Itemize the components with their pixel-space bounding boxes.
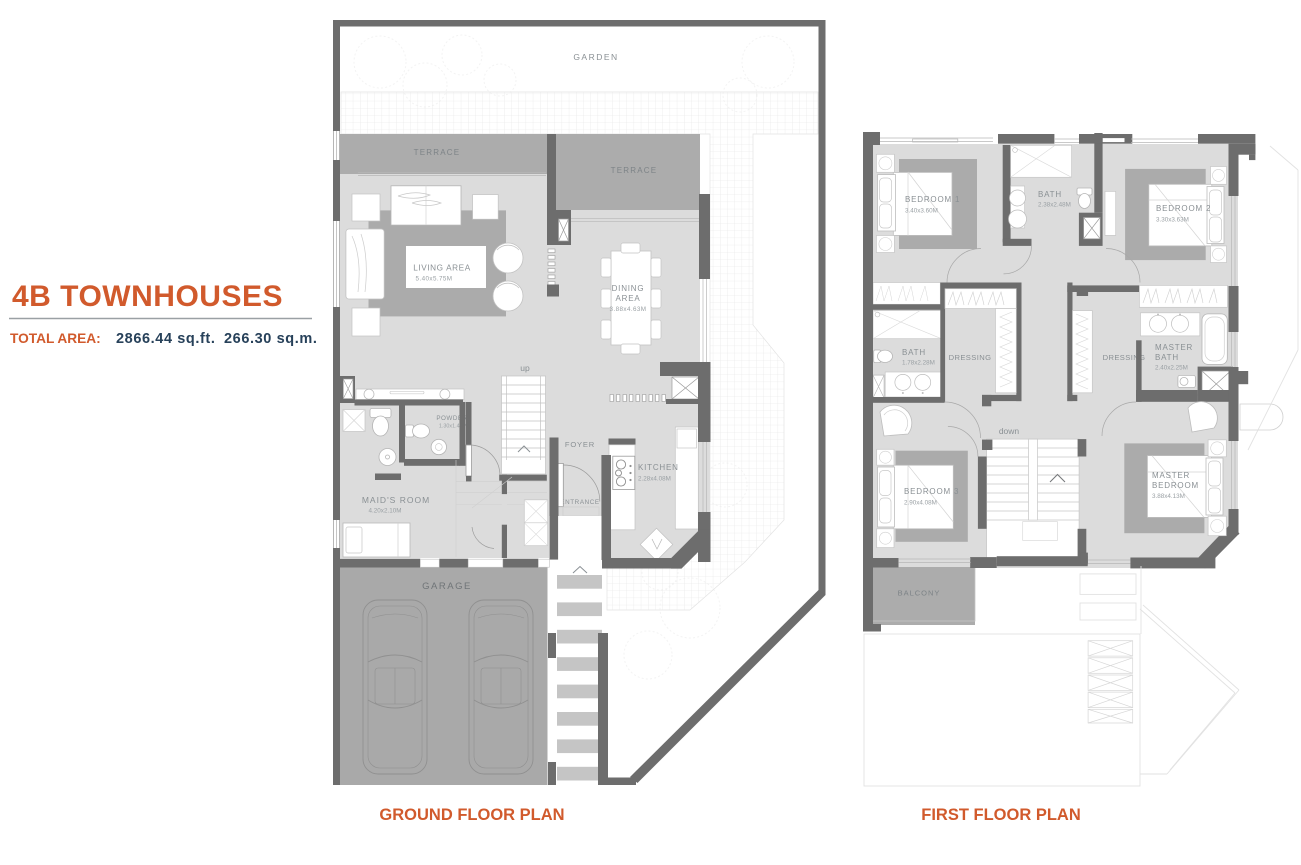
svg-text:4.20x2.10M: 4.20x2.10M xyxy=(369,508,402,515)
svg-text:3.30x3.63M: 3.30x3.63M xyxy=(1156,217,1189,224)
svg-text:4B TOWNHOUSES: 4B TOWNHOUSES xyxy=(12,280,283,313)
svg-text:BEDROOM 2: BEDROOM 2 xyxy=(1156,204,1211,213)
svg-text:2.38x2.48M: 2.38x2.48M xyxy=(1038,202,1071,209)
svg-text:BATH: BATH xyxy=(902,348,926,357)
svg-text:2.28x4.08M: 2.28x4.08M xyxy=(638,476,671,483)
svg-text:FIRST FLOOR PLAN: FIRST FLOOR PLAN xyxy=(921,806,1081,824)
svg-text:FOYER: FOYER xyxy=(565,440,595,449)
svg-text:MASTER: MASTER xyxy=(1155,343,1193,352)
svg-text:2866.44 sq.ft.: 2866.44 sq.ft. xyxy=(116,331,215,347)
svg-text:DINING: DINING xyxy=(612,284,645,293)
svg-text:AREA: AREA xyxy=(616,294,641,303)
svg-text:BATH: BATH xyxy=(1038,190,1062,199)
svg-text:LIVING AREA: LIVING AREA xyxy=(413,264,471,273)
svg-text:BALCONY: BALCONY xyxy=(898,589,941,598)
svg-text:BEDROOM 3: BEDROOM 3 xyxy=(904,487,959,496)
svg-text:3.88x4.63M: 3.88x4.63M xyxy=(610,306,647,313)
svg-text:MASTER: MASTER xyxy=(1152,471,1190,480)
svg-text:BATH: BATH xyxy=(1155,353,1179,362)
svg-text:TERRACE: TERRACE xyxy=(611,166,658,175)
svg-text:GARDEN: GARDEN xyxy=(573,52,618,62)
svg-text:ENTRANCE: ENTRANCE xyxy=(560,499,599,506)
svg-text:3.88x4.13M: 3.88x4.13M xyxy=(1152,493,1185,500)
svg-text:MAID'S ROOM: MAID'S ROOM xyxy=(362,495,430,505)
svg-text:TERRACE: TERRACE xyxy=(414,148,461,157)
svg-text:1.78x2.28M: 1.78x2.28M xyxy=(902,360,935,367)
svg-text:DRESSING: DRESSING xyxy=(949,353,992,362)
svg-text:GARAGE: GARAGE xyxy=(422,581,472,592)
svg-text:BEDROOM: BEDROOM xyxy=(1152,481,1199,490)
svg-text:3.40x3.60M: 3.40x3.60M xyxy=(905,208,938,215)
svg-text:GROUND FLOOR PLAN: GROUND FLOOR PLAN xyxy=(379,806,564,824)
svg-text:266.30 sq.m.: 266.30 sq.m. xyxy=(224,331,317,347)
svg-text:2.40x2.25M: 2.40x2.25M xyxy=(1155,365,1188,372)
svg-text:BEDROOM 1: BEDROOM 1 xyxy=(905,195,960,204)
svg-text:2.90x4.08M: 2.90x4.08M xyxy=(904,500,937,507)
svg-text:up: up xyxy=(520,363,530,373)
svg-text:down: down xyxy=(999,426,1020,436)
svg-text:5.40x5.75M: 5.40x5.75M xyxy=(416,276,453,283)
svg-text:TOTAL AREA:: TOTAL AREA: xyxy=(10,331,101,346)
svg-text:KITCHEN: KITCHEN xyxy=(638,463,679,472)
